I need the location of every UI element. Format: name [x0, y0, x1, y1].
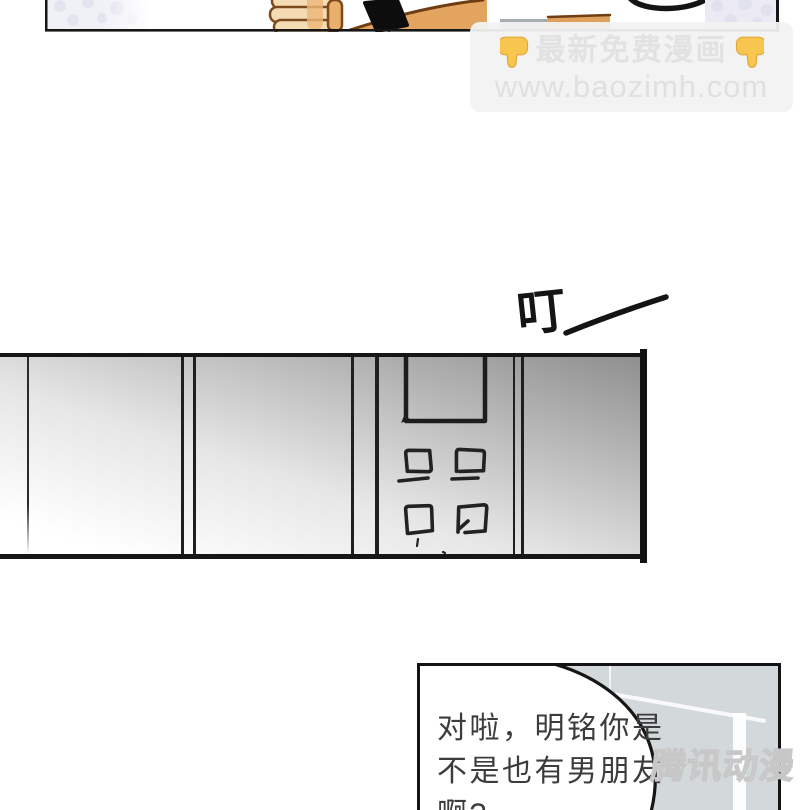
- speckled-blanket-left: [47, 0, 150, 30]
- button-bottom-right: [457, 503, 487, 534]
- sfx-dash-stroke: [558, 288, 673, 340]
- button-top-left: [399, 450, 431, 481]
- speech-line-3: 啊?: [437, 793, 665, 810]
- site-watermark-title: 最新免费漫画: [536, 36, 728, 66]
- bottom-panel: 对啦，明铭你是 不是也有男朋友 啊?: [417, 663, 781, 810]
- top-panel-border-left: [45, 0, 48, 31]
- middle-panel: [0, 353, 647, 559]
- pointer-down-icon-left: [500, 33, 530, 69]
- button-bottom-left: [406, 506, 433, 534]
- tencent-comics-watermark: 腾讯动漫: [649, 749, 797, 784]
- site-watermark-box: 最新免费漫画 www.baozimh.com: [470, 22, 793, 112]
- middle-panel-border-top: [0, 353, 647, 357]
- middle-panel-border-right: [640, 349, 647, 563]
- comic-page: 最新免费漫画 www.baozimh.com 叮: [0, 0, 800, 810]
- speech-line-2: 不是也有男朋友: [437, 750, 665, 793]
- button-top-right: [452, 449, 485, 479]
- small-dot: [443, 552, 445, 553]
- speech-line-1: 对啦，明铭你是: [437, 707, 665, 750]
- pointer-down-icon-right: [734, 33, 764, 69]
- site-watermark-url: www.baozimh.com: [495, 71, 768, 102]
- door-window-outline: [406, 355, 485, 421]
- small-tick: [417, 539, 418, 546]
- middle-panel-border-bottom: [0, 554, 647, 559]
- hand-knuckles: [270, 0, 342, 32]
- door-doodles: [0, 353, 647, 559]
- speech-text: 对啦，明铭你是 不是也有男朋友 啊?: [437, 707, 665, 810]
